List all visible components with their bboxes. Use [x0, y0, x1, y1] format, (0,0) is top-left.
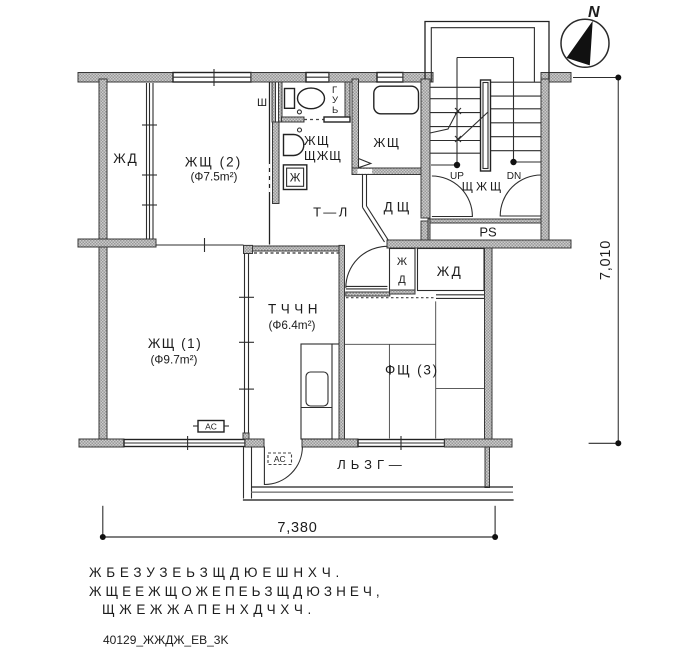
svg-text:(Ф9.7m²): (Ф9.7m²): [151, 353, 198, 367]
svg-text:AC: AC: [274, 454, 286, 464]
svg-text:(Ф7.5m²): (Ф7.5m²): [191, 170, 238, 184]
svg-text:ТЧЧН: ТЧЧН: [268, 302, 322, 317]
svg-text:40129_ЖЖДЖ_EB_3K: 40129_ЖЖДЖ_EB_3K: [103, 633, 228, 647]
svg-text:ЖБЕЗУЗЕЬЗЩДЮЕШНХЧ.: ЖБЕЗУЗЕЬЗЩДЮЕШНХЧ.: [89, 565, 344, 580]
svg-text:ЩЖЩ: ЩЖЩ: [304, 149, 342, 163]
svg-text:PS: PS: [479, 225, 497, 240]
svg-text:ЖЩЕЕЖЩОЖЕПЕЬЗЩДЮЗНЕЧ,: ЖЩЕЕЖЩОЖЕПЕЬЗЩДЮЗНЕЧ,: [89, 584, 384, 599]
svg-text:ЩЖЩ: ЩЖЩ: [462, 180, 505, 194]
svg-text:Ж: Ж: [290, 173, 301, 185]
svg-text:ЛЬЗГ—: ЛЬЗГ—: [337, 457, 407, 472]
svg-text:(Ф6.4m²): (Ф6.4m²): [269, 318, 316, 332]
svg-text:ЖЩ: ЖЩ: [373, 135, 400, 150]
svg-text:Ж: Ж: [397, 256, 407, 268]
svg-text:N: N: [588, 4, 600, 21]
svg-text:AC: AC: [205, 422, 217, 432]
svg-text:ФЩ (3): ФЩ (3): [385, 363, 439, 378]
svg-text:7,380: 7,380: [277, 520, 317, 536]
svg-text:7,010: 7,010: [598, 240, 614, 280]
svg-text:ЖЩ (1): ЖЩ (1): [148, 336, 202, 351]
svg-text:DN: DN: [507, 171, 521, 182]
svg-text:Т—Л: Т—Л: [313, 205, 350, 220]
svg-text:Ш: Ш: [257, 97, 267, 109]
svg-text:ЖЩ (2): ЖЩ (2): [185, 155, 242, 170]
svg-text:ЖД: ЖД: [113, 151, 139, 166]
svg-text:ЖЩ: ЖЩ: [304, 134, 330, 148]
svg-text:Д: Д: [398, 274, 406, 286]
svg-text:ЖД: ЖД: [437, 264, 464, 279]
svg-text:ЩЖЕЖЖАПЕНХДЧХЧ.: ЩЖЕЖЖАПЕНХДЧХЧ.: [102, 602, 316, 617]
svg-text:Ь: Ь: [332, 105, 338, 116]
svg-text:ДЩ: ДЩ: [384, 200, 414, 215]
